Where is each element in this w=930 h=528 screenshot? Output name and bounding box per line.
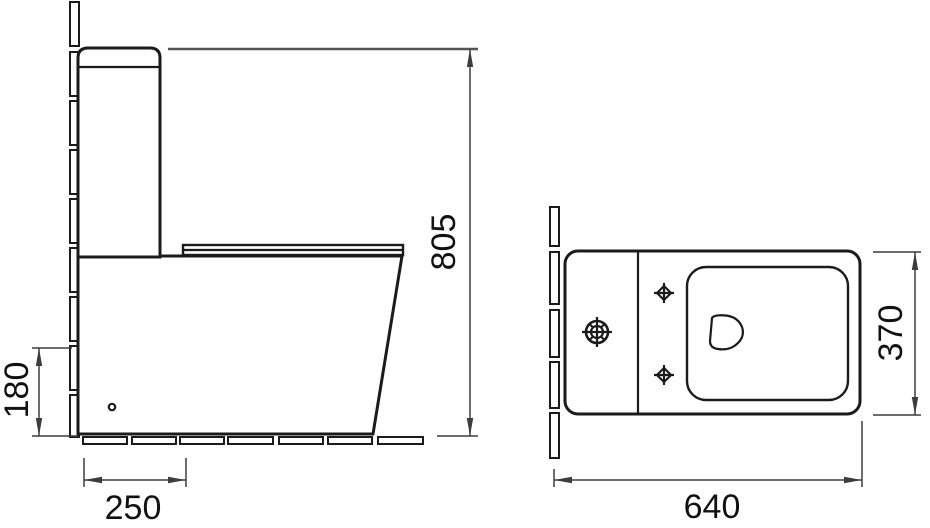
floor-tile	[228, 437, 273, 444]
cistern-outline	[78, 48, 160, 257]
wall-hatch-top	[550, 207, 559, 458]
floor-tile	[83, 437, 127, 444]
dim-length-arrow-left	[554, 477, 572, 483]
floor-tile	[378, 437, 423, 444]
dim-height-label: 805	[425, 214, 463, 271]
dim-width-arrow-down	[912, 397, 918, 415]
dim-length: 640	[554, 421, 862, 526]
floor-tile	[180, 437, 224, 444]
dim-height-arrow-down	[467, 418, 473, 436]
dim-outlet-offset: 250	[84, 458, 186, 527]
dim-inlet-label: 180	[0, 362, 36, 419]
wall-tile	[550, 207, 559, 246]
dim-offset-arrow-right	[168, 477, 186, 483]
floor-hatch	[83, 437, 423, 444]
dim-offset-arrow-left	[84, 477, 102, 483]
bowl-outline	[78, 256, 402, 434]
dim-length-label: 640	[684, 488, 741, 526]
floor-tile	[328, 437, 372, 444]
wall-tile	[70, 2, 79, 46]
wall-tile	[550, 310, 559, 357]
dim-inlet-height: 180	[0, 348, 78, 436]
side-view: 805 180 250	[0, 2, 478, 527]
dim-offset-label: 250	[105, 489, 162, 527]
dim-length-arrow-right	[844, 477, 862, 483]
toilet-technical-drawing: 805 180 250	[0, 0, 930, 528]
dim-height-arrow-up	[467, 49, 473, 67]
floor-tile	[279, 437, 323, 444]
wall-tile	[550, 362, 559, 408]
floor-tile	[132, 437, 176, 444]
wall-tile	[550, 252, 559, 304]
technical-drawing-page: 805 180 250	[0, 0, 930, 528]
dim-width: 370	[872, 252, 921, 415]
wall-tile	[550, 413, 559, 458]
dim-inlet-arrow-up	[36, 348, 42, 366]
dim-width-label: 370	[872, 305, 910, 362]
dim-inlet-arrow-down	[36, 418, 42, 436]
seat-profile	[183, 245, 403, 255]
dim-width-arrow-up	[912, 252, 918, 270]
top-view: 370 640	[550, 207, 921, 526]
